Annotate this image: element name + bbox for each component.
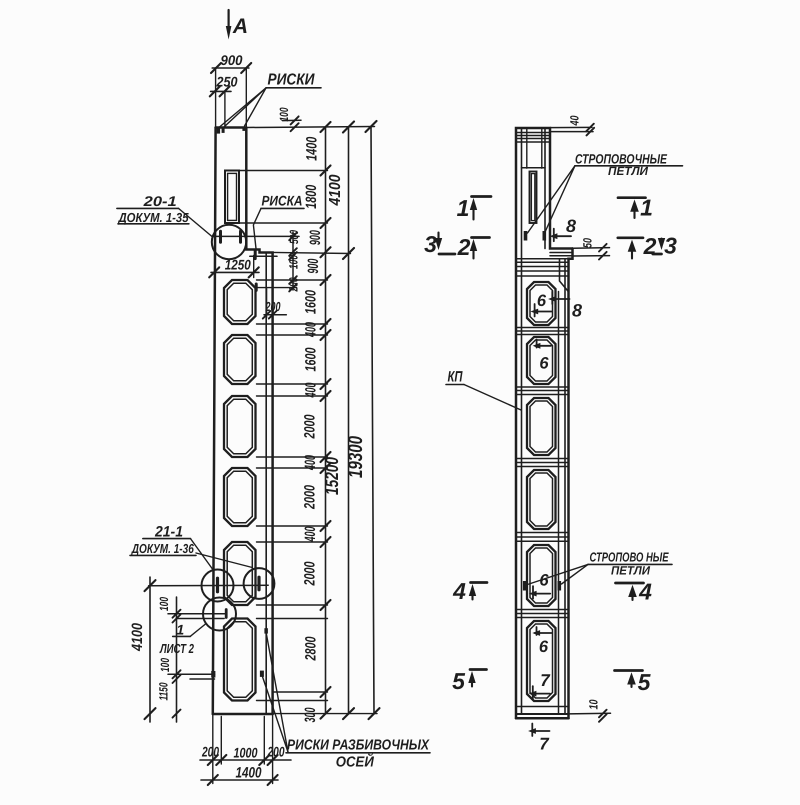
svg-text:2000: 2000	[302, 414, 319, 439]
svg-text:250: 250	[216, 74, 238, 90]
svg-text:1150: 1150	[157, 682, 171, 700]
svg-text:А: А	[232, 15, 248, 38]
svg-text:1400: 1400	[304, 136, 321, 160]
svg-text:100: 100	[157, 597, 171, 611]
svg-text:4100: 4100	[129, 622, 146, 651]
svg-text:8: 8	[566, 216, 576, 236]
svg-text:10: 10	[587, 699, 601, 709]
svg-text:200: 200	[287, 277, 301, 292]
svg-text:100: 100	[277, 107, 291, 121]
svg-text:900: 900	[305, 258, 322, 273]
svg-text:1800: 1800	[303, 184, 320, 208]
svg-text:РИСКА: РИСКА	[262, 193, 303, 209]
svg-text:7: 7	[539, 735, 550, 754]
svg-text:20-1: 20-1	[143, 193, 177, 209]
svg-text:РИСКИ: РИСКИ	[268, 72, 315, 89]
svg-text:4100: 4100	[327, 174, 344, 206]
svg-text:3: 3	[424, 231, 437, 257]
svg-text:4: 4	[452, 578, 466, 604]
svg-text:РИСКИ РАЗБИВОЧНЫХ: РИСКИ РАЗБИВОЧНЫХ	[287, 738, 430, 754]
svg-text:1: 1	[640, 195, 653, 221]
svg-text:1: 1	[457, 195, 470, 221]
svg-text:СТРОПОВО НЫЕ: СТРОПОВО НЫЕ	[590, 550, 669, 565]
svg-text:1400: 1400	[236, 765, 263, 782]
svg-text:900: 900	[221, 52, 243, 68]
svg-text:19300: 19300	[345, 436, 367, 478]
svg-text:1000: 1000	[234, 745, 258, 761]
svg-text:5: 5	[452, 668, 466, 694]
svg-text:2000: 2000	[302, 561, 319, 586]
svg-text:6: 6	[537, 292, 547, 310]
svg-text:1: 1	[176, 622, 184, 638]
svg-text:200: 200	[267, 744, 285, 760]
svg-text:1250: 1250	[225, 257, 251, 273]
svg-text:8: 8	[572, 301, 582, 321]
svg-text:1600: 1600	[303, 290, 320, 314]
svg-text:КП: КП	[448, 369, 464, 386]
svg-text:15200: 15200	[321, 456, 342, 495]
svg-text:2000: 2000	[302, 485, 319, 510]
svg-text:4: 4	[638, 579, 652, 605]
svg-text:ДОКУМ. 1-35: ДОКУМ. 1-35	[118, 210, 190, 225]
svg-text:2800: 2800	[303, 636, 320, 661]
svg-text:6: 6	[539, 638, 549, 656]
svg-text:100: 100	[158, 658, 172, 672]
svg-text:100: 100	[287, 255, 301, 269]
svg-text:400: 400	[302, 526, 319, 542]
svg-text:40: 40	[568, 115, 582, 126]
svg-text:7: 7	[540, 671, 551, 690]
svg-text:3: 3	[664, 233, 677, 259]
svg-text:6: 6	[539, 355, 549, 373]
svg-text:5: 5	[638, 669, 652, 695]
svg-text:900: 900	[307, 230, 324, 245]
svg-text:ПЕТЛИ: ПЕТЛИ	[611, 564, 650, 578]
svg-text:50: 50	[580, 238, 594, 248]
svg-text:2: 2	[457, 234, 471, 260]
svg-text:6: 6	[539, 572, 549, 590]
svg-text:ДОКУМ. 1-36: ДОКУМ. 1-36	[131, 541, 194, 556]
svg-text:200: 200	[201, 744, 219, 760]
svg-text:300: 300	[302, 707, 319, 722]
svg-text:ОСЕЙ: ОСЕЙ	[336, 753, 375, 771]
svg-text:500: 500	[287, 230, 301, 244]
svg-text:1600: 1600	[303, 347, 320, 371]
